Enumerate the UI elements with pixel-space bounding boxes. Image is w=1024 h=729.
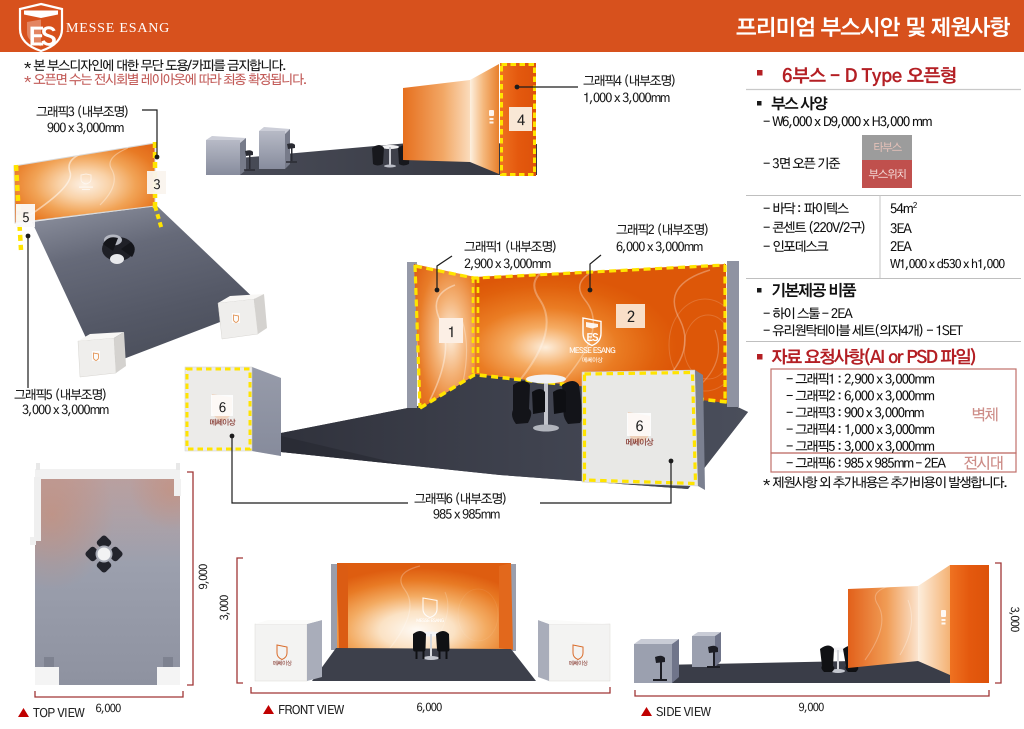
svg-text:MESSE ESANG: MESSE ESANG [66,21,170,36]
